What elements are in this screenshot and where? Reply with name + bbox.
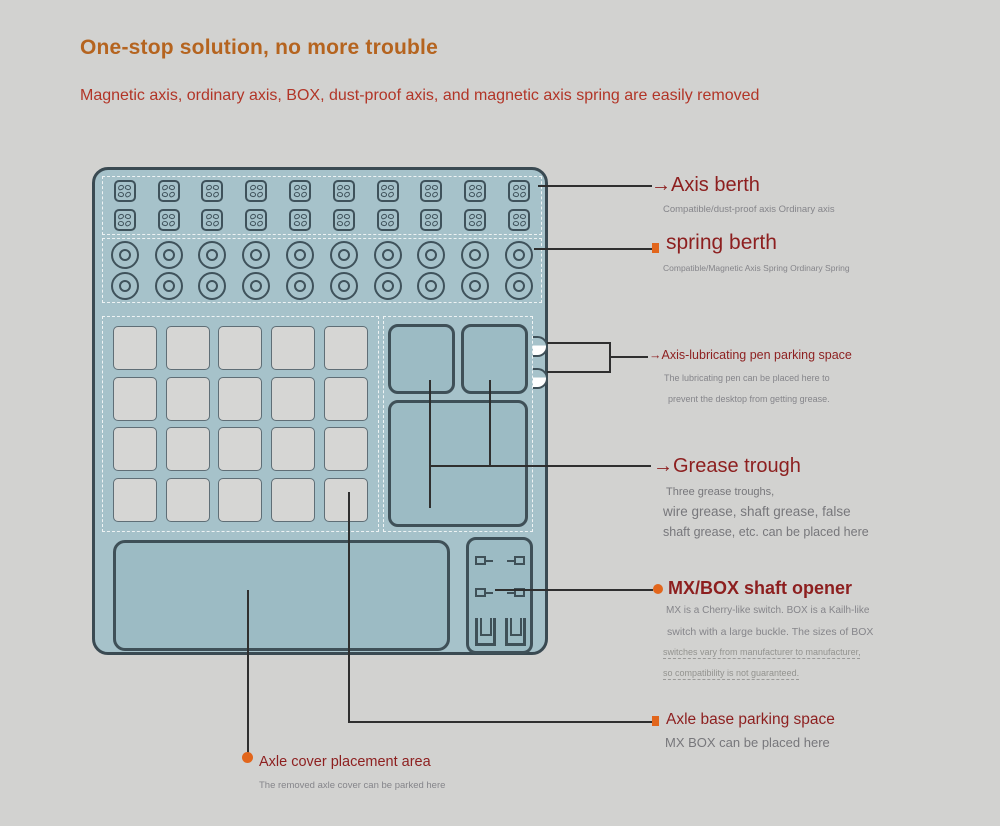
axis-berth-slot-icon: [158, 180, 180, 202]
axle-base-slot: [324, 326, 368, 370]
axis-berth-slot-icon: [464, 180, 486, 202]
spring-berth-slot-icon: [461, 241, 489, 269]
opener-clip-icon: [475, 556, 493, 565]
spring-berth-sub: Compatible/Magnetic Axis Spring Ordinary…: [663, 263, 850, 273]
shaft-opener-sub2: switch with a large buckle. The sizes of…: [667, 626, 873, 638]
axle-base-slot: [113, 478, 157, 522]
axis-berth-slot-icon: [420, 209, 442, 231]
spring-berth-slot-icon: [417, 272, 445, 300]
axle-base-slot-section: [102, 316, 379, 532]
page-subtitle: Magnetic axis, ordinary axis, BOX, dust-…: [80, 87, 759, 105]
axle-base-slot: [166, 377, 210, 421]
spring-berth-slot-icon: [111, 272, 139, 300]
grease-line-v1: [429, 380, 431, 508]
opener-bracket-icon: [505, 618, 526, 646]
axle-base-slot: [271, 478, 315, 522]
axis-berth-slot-icon: [289, 180, 311, 202]
grease-trough-small-2: [461, 324, 528, 394]
axis-berth-sub: Compatible/dust-proof axis Ordinary axis: [663, 204, 835, 215]
spring-berth-slot-icon: [374, 241, 402, 269]
axle-base-slot: [113, 427, 157, 471]
page-title: One-stop solution, no more trouble: [80, 36, 438, 60]
opener-clip-icon: [507, 556, 525, 565]
axis-berth-slot-icon: [201, 180, 223, 202]
pen-parking-sub2: prevent the desktop from getting grease.: [668, 394, 830, 404]
axis-berth-slot-icon: [377, 180, 399, 202]
infographic-page: One-stop solution, no more trouble Magne…: [0, 0, 1000, 826]
axle-base-slot: [218, 478, 262, 522]
shaft-opener-sub4: so compatibility is not guaranteed.: [663, 668, 799, 678]
spring-berth-slot-icon: [330, 272, 358, 300]
pen-parking-label: →Axis-lubricating pen parking space: [649, 348, 852, 362]
mx-box-opener-compartment: [466, 537, 533, 654]
grease-trough-large: [388, 400, 528, 527]
grease-line-v2: [489, 380, 491, 467]
spring-berth-slot-icon: [461, 272, 489, 300]
axle-base-slot: [166, 478, 210, 522]
axis-berth-slot-icon: [508, 209, 530, 231]
grease-line-h: [429, 465, 651, 467]
axis-berth-slot-icon: [333, 209, 355, 231]
shaft-opener-bullet-icon: [653, 584, 663, 594]
right-arrow-icon: →: [653, 455, 673, 477]
axle-base-slot: [271, 326, 315, 370]
pen-parking-sub1: The lubricating pen can be placed here t…: [664, 373, 830, 383]
axis-berth-slot-icon: [420, 180, 442, 202]
axis-berth-slot-icon: [245, 180, 267, 202]
axle-cover-bullet-icon: [242, 752, 253, 763]
spring-berth-line: [534, 248, 653, 250]
axle-base-slot: [166, 427, 210, 471]
grease-trough-small-1: [388, 324, 455, 394]
right-arrow-icon: →: [651, 174, 671, 196]
grease-trough-sub2: wire grease, shaft grease, false: [663, 504, 851, 519]
axle-base-line-v: [348, 492, 350, 723]
spring-berth-slot-icon: [198, 272, 226, 300]
axle-base-bullet-icon: [652, 716, 659, 726]
axle-base-slot: [113, 326, 157, 370]
axle-base-slot: [218, 326, 262, 370]
right-arrow-icon: →: [649, 348, 662, 362]
grease-trough-sub3: shaft grease, etc. can be placed here: [663, 525, 869, 539]
axis-berth-line: [538, 185, 652, 187]
axis-berth-slot-icon: [201, 209, 223, 231]
grease-trough-sub1: Three grease troughs,: [666, 486, 774, 498]
axis-berth-slot-icon: [245, 209, 267, 231]
shaft-opener-sub3: switches vary from manufacturer to manuf…: [663, 647, 861, 657]
axle-base-slot: [166, 326, 210, 370]
axle-base-slot: [324, 427, 368, 471]
axle-base-slot: [113, 377, 157, 421]
grease-trough-label: →Grease trough: [653, 455, 801, 478]
spring-berth-slot-icon: [155, 272, 183, 300]
spring-berth-slot-icon: [111, 241, 139, 269]
axle-base-slot: [218, 427, 262, 471]
shaft-opener-sub1: MX is a Cherry-like switch. BOX is a Kai…: [666, 605, 869, 616]
axle-base-line-h: [348, 721, 653, 723]
spring-berth-label: spring berth: [666, 231, 777, 255]
spring-berth-slot-icon: [505, 272, 533, 300]
axis-berth-slot-icon: [289, 209, 311, 231]
shaft-opener-label: MX/BOX shaft opener: [668, 578, 852, 599]
spring-berth-slot-icon: [155, 241, 183, 269]
switch-opener-device: [92, 167, 548, 655]
axis-berth-label: →Axis berth: [651, 174, 760, 197]
axle-base-sub: MX BOX can be placed here: [665, 735, 830, 750]
shaft-opener-line: [495, 589, 653, 591]
axis-berth-slot-icon: [508, 180, 530, 202]
axis-berth-slot-icon: [114, 209, 136, 231]
axis-berth-slot-icon: [114, 180, 136, 202]
pen-clip-bottom: [533, 368, 548, 389]
spring-berth-slot-icon: [374, 272, 402, 300]
spring-berth-bullet-icon: [652, 243, 659, 253]
pen-parking-line: [611, 356, 648, 358]
axle-cover-sub: The removed axle cover can be parked her…: [259, 780, 445, 791]
opener-clip-icon: [475, 588, 493, 597]
axis-berth-slot-icon: [333, 180, 355, 202]
spring-berth-slot-icon: [505, 241, 533, 269]
opener-bracket-icon: [475, 618, 496, 646]
spring-berth-slot-icon: [242, 272, 270, 300]
axle-cover-tray: [113, 540, 450, 651]
axle-base-slot: [324, 478, 368, 522]
axle-base-slot: [271, 427, 315, 471]
spring-berth-slot-icon: [330, 241, 358, 269]
axle-base-slot: [218, 377, 262, 421]
axis-berth-slot-icon: [158, 209, 180, 231]
axis-berth-slot-icon: [377, 209, 399, 231]
spring-berth-slot-icon: [198, 241, 226, 269]
spring-berth-slot-icon: [286, 241, 314, 269]
pen-parking-bracket: [547, 342, 611, 373]
axle-cover-label: Axle cover placement area: [259, 754, 431, 770]
axis-berth-section: [102, 176, 542, 235]
spring-berth-slot-icon: [286, 272, 314, 300]
axle-base-slot: [324, 377, 368, 421]
spring-berth-section: [102, 238, 542, 303]
axis-berth-slot-icon: [464, 209, 486, 231]
axle-base-slot: [271, 377, 315, 421]
spring-berth-slot-icon: [242, 241, 270, 269]
spring-berth-slot-icon: [417, 241, 445, 269]
pen-clip-top: [533, 336, 548, 357]
axle-base-label: Axle base parking space: [666, 711, 835, 729]
axle-cover-line-v: [247, 590, 249, 757]
